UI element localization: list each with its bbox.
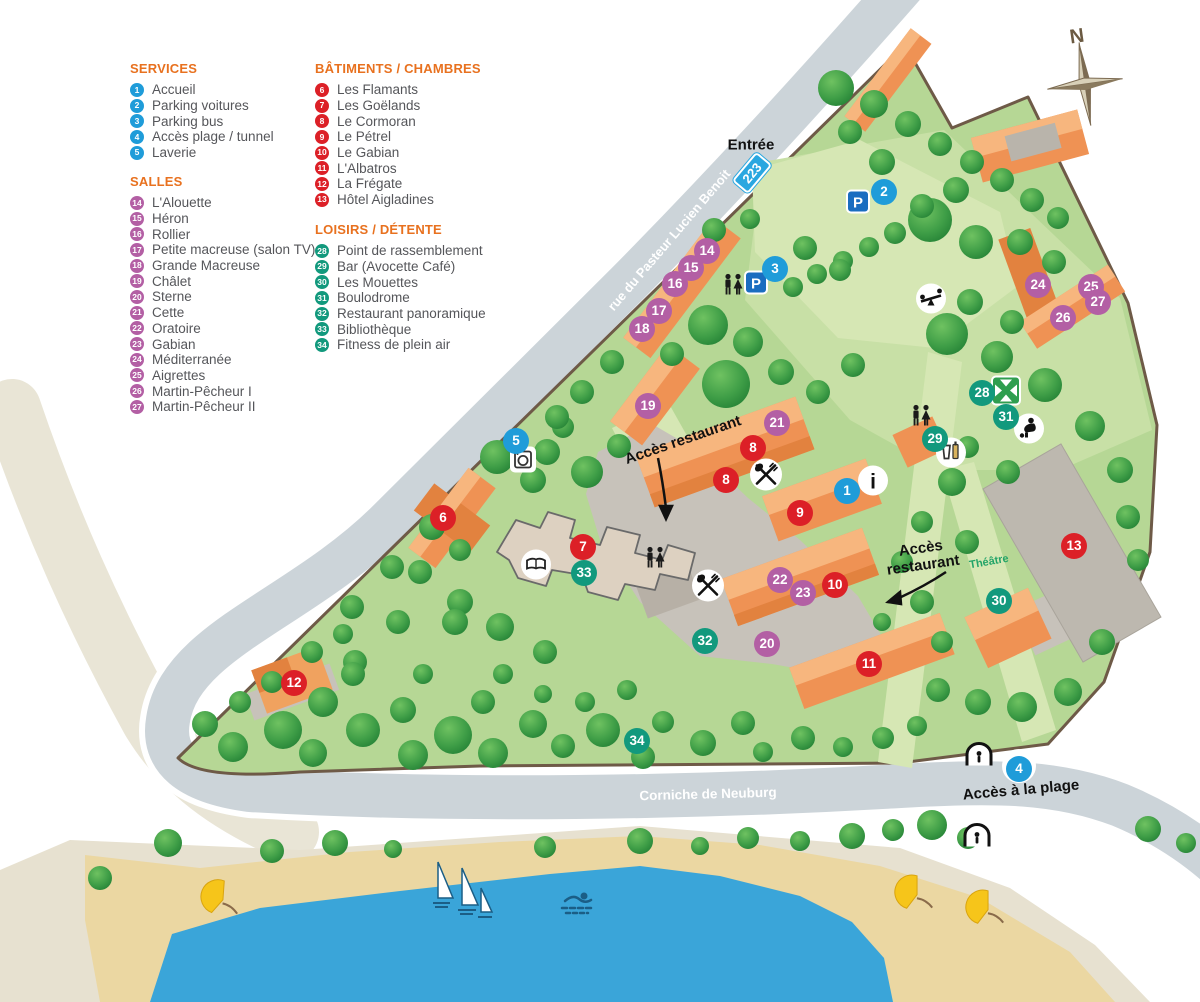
tree <box>1007 229 1033 255</box>
tree <box>911 511 933 533</box>
legend-item-label: Restaurant panoramique <box>337 306 486 321</box>
tree <box>926 678 950 702</box>
tree <box>841 353 865 377</box>
legend-marker-dot: 3 <box>130 114 144 128</box>
legend-item-22: 22Oratoire <box>130 321 315 337</box>
tree <box>818 70 854 106</box>
tree <box>807 264 827 284</box>
tree <box>938 468 966 496</box>
legend-section-services: SERVICES1Accueil2Parking voitures3Parkin… <box>130 61 274 160</box>
legend-item-26: 26Martin-Pêcheur I <box>130 383 315 399</box>
tree <box>449 539 471 561</box>
tree <box>702 360 750 408</box>
tree <box>533 640 557 664</box>
legend-marker-dot: 7 <box>315 99 329 113</box>
legend-item-19: 19Châlet <box>130 273 315 289</box>
legend-item-label: Cette <box>152 305 184 320</box>
legend-marker-dot: 34 <box>315 338 329 352</box>
legend-item-18: 18Grande Macreuse <box>130 258 315 274</box>
legend-item-2: 2Parking voitures <box>130 98 274 114</box>
tree <box>413 664 433 684</box>
tree <box>957 436 979 458</box>
legend-item-10: 10Le Gabian <box>315 145 481 161</box>
tree <box>957 827 979 849</box>
tree <box>534 836 556 858</box>
tree <box>731 711 755 735</box>
tree <box>534 439 560 465</box>
legend-marker-dot: 8 <box>315 114 329 128</box>
tree <box>384 840 402 858</box>
legend-title: BÂTIMENTS / CHAMBRES <box>315 61 481 76</box>
tree <box>960 150 984 174</box>
tree <box>1176 833 1196 853</box>
tree <box>1089 629 1115 655</box>
legend-marker-dot: 6 <box>315 83 329 97</box>
legend-marker-dot: 14 <box>130 196 144 210</box>
tree <box>341 662 365 686</box>
legend-item-label: Laverie <box>152 145 196 160</box>
legend-item-8: 8Le Cormoran <box>315 113 481 129</box>
tree <box>627 828 653 854</box>
tree <box>586 713 620 747</box>
legend-item-label: La Frégate <box>337 176 402 191</box>
tree <box>520 467 546 493</box>
legend-item-label: Le Cormoran <box>337 114 416 129</box>
tree <box>534 685 552 703</box>
tree <box>910 194 934 218</box>
tree <box>688 305 728 345</box>
tree <box>154 829 182 857</box>
tree <box>442 609 468 635</box>
legend-item-label: Parking bus <box>152 114 223 129</box>
tree <box>1000 310 1024 334</box>
legend-item-label: Boulodrome <box>337 290 410 305</box>
tree <box>478 738 508 768</box>
tree <box>261 671 283 693</box>
legend-item-label: Petite macreuse (salon TV) <box>152 242 315 257</box>
legend-marker-dot: 19 <box>130 274 144 288</box>
tree <box>218 732 248 762</box>
legend-marker-dot: 29 <box>315 260 329 274</box>
legend-item-31: 31Boulodrome <box>315 290 486 306</box>
tree <box>471 690 495 714</box>
legend-item-6: 6Les Flamants <box>315 82 481 98</box>
tree <box>1028 368 1062 402</box>
tree <box>1007 692 1037 722</box>
legend-item-29: 29Bar (Avocette Café) <box>315 259 486 275</box>
legend-item-14: 14L'Alouette <box>130 195 315 211</box>
legend-item-28: 28Point de rassemblement <box>315 243 486 259</box>
legend-item-13: 13Hôtel Aigladines <box>315 192 481 208</box>
tree <box>660 342 684 366</box>
tree <box>928 132 952 156</box>
tree <box>1054 678 1082 706</box>
tree <box>571 456 603 488</box>
tree <box>299 739 327 767</box>
tree <box>783 277 803 297</box>
tree <box>790 831 810 851</box>
tree <box>340 595 364 619</box>
legend-marker-dot: 32 <box>315 307 329 321</box>
tree <box>917 810 947 840</box>
tree <box>872 727 894 749</box>
tree <box>860 90 888 118</box>
legend-marker-dot: 10 <box>315 146 329 160</box>
legend-item-4: 4Accès plage / tunnel <box>130 129 274 145</box>
tree <box>346 713 380 747</box>
beach-access-notch <box>1002 749 1036 783</box>
tree <box>895 111 921 137</box>
tree <box>398 740 428 770</box>
legend-item-23: 23Gabian <box>130 336 315 352</box>
legend-item-30: 30Les Mouettes <box>315 274 486 290</box>
legend-item-label: Bibliothèque <box>337 322 411 337</box>
tree <box>1116 505 1140 529</box>
legend-title: LOISIRS / DÉTENTE <box>315 222 486 237</box>
legend-item-label: Les Goëlands <box>337 98 420 113</box>
legend-item-label: Héron <box>152 211 189 226</box>
tree <box>740 209 760 229</box>
tree <box>1042 250 1066 274</box>
tree <box>486 613 514 641</box>
tree <box>301 641 323 663</box>
legend-marker-dot: 9 <box>315 130 329 144</box>
tree <box>264 711 302 749</box>
tree <box>631 745 655 769</box>
legend-item-24: 24Méditerranée <box>130 352 315 368</box>
legend-item-label: Parking voitures <box>152 98 249 113</box>
legend-item-33: 33Bibliothèque <box>315 321 486 337</box>
legend-item-label: Accès plage / tunnel <box>152 129 274 144</box>
legend-item-27: 27Martin-Pêcheur II <box>130 399 315 415</box>
legend-marker-dot: 30 <box>315 275 329 289</box>
legend-item-12: 12La Frégate <box>315 176 481 192</box>
tree <box>910 590 934 614</box>
legend-marker-dot: 23 <box>130 337 144 351</box>
tree <box>737 827 759 849</box>
legend-marker-dot: 33 <box>315 322 329 336</box>
tree <box>229 691 251 713</box>
legend-item-label: Martin-Pêcheur I <box>152 384 252 399</box>
legend-marker-dot: 18 <box>130 259 144 273</box>
tree <box>617 680 637 700</box>
tree <box>88 866 112 890</box>
legend-marker-dot: 25 <box>130 368 144 382</box>
tree <box>791 726 815 750</box>
legend-marker-dot: 1 <box>130 83 144 97</box>
tree <box>260 839 284 863</box>
tree <box>943 177 969 203</box>
legend-item-3: 3Parking bus <box>130 113 274 129</box>
legend-item-label: Gabian <box>152 337 196 352</box>
legend-marker-dot: 13 <box>315 193 329 207</box>
tree <box>965 689 991 715</box>
tree <box>996 460 1020 484</box>
legend-item-label: Le Pétrel <box>337 129 391 144</box>
tree <box>551 734 575 758</box>
tree <box>380 555 404 579</box>
tree <box>322 830 348 856</box>
tree <box>957 289 983 315</box>
tree <box>882 819 904 841</box>
legend-item-11: 11L'Albatros <box>315 160 481 176</box>
tree <box>931 631 953 653</box>
tree <box>733 327 763 357</box>
legend-item-label: Châlet <box>152 274 191 289</box>
legend-marker-dot: 4 <box>130 130 144 144</box>
resort-map-page: PPi 123456788910111213141516171819202122… <box>0 0 1200 1002</box>
tree <box>926 313 968 355</box>
legend-item-label: Aigrettes <box>152 368 205 383</box>
tree <box>768 359 794 385</box>
legend-item-5: 5Laverie <box>130 145 274 161</box>
legend-marker-dot: 20 <box>130 290 144 304</box>
tree <box>607 434 631 458</box>
legend-item-label: Rollier <box>152 227 190 242</box>
legend-section-batiments: BÂTIMENTS / CHAMBRES6Les Flamants7Les Go… <box>315 61 481 208</box>
tree <box>545 405 569 429</box>
legend-item-16: 16Rollier <box>130 226 315 242</box>
legend-item-label: L'Albatros <box>337 161 397 176</box>
legend-item-15: 15Héron <box>130 211 315 227</box>
legend-item-label: Les Flamants <box>337 82 418 97</box>
tree <box>873 613 891 631</box>
legend-marker-dot: 17 <box>130 243 144 257</box>
tree <box>838 120 862 144</box>
tree <box>1020 188 1044 212</box>
legend-item-label: Hôtel Aigladines <box>337 192 434 207</box>
legend-marker-dot: 15 <box>130 212 144 226</box>
legend-item-17: 17Petite macreuse (salon TV) <box>130 242 315 258</box>
legend-marker-dot: 11 <box>315 161 329 175</box>
tree <box>652 711 674 733</box>
legend-item-label: Oratoire <box>152 321 201 336</box>
legend-item-label: Sterne <box>152 289 192 304</box>
legend-marker-dot: 22 <box>130 321 144 335</box>
legend-item-label: Le Gabian <box>337 145 399 160</box>
tree <box>1127 549 1149 571</box>
legend-marker-dot: 24 <box>130 353 144 367</box>
tree <box>1075 411 1105 441</box>
tree <box>981 341 1013 373</box>
tree <box>891 551 913 573</box>
tree <box>333 624 353 644</box>
tree <box>959 225 993 259</box>
legend-item-label: Les Mouettes <box>337 275 418 290</box>
tree <box>1135 816 1161 842</box>
tree <box>955 530 979 554</box>
tree <box>1107 457 1133 483</box>
legend-item-21: 21Cette <box>130 305 315 321</box>
legend-item-1: 1Accueil <box>130 82 274 98</box>
tree <box>308 687 338 717</box>
tree <box>907 716 927 736</box>
legend-item-25: 25Aigrettes <box>130 368 315 384</box>
legend-marker-dot: 2 <box>130 99 144 113</box>
legend-marker-dot: 27 <box>130 400 144 414</box>
legend-marker-dot: 16 <box>130 227 144 241</box>
tree <box>702 218 726 242</box>
tree <box>386 610 410 634</box>
tree <box>434 716 472 754</box>
legend-marker-dot: 26 <box>130 384 144 398</box>
legend-section-loisirs: LOISIRS / DÉTENTE28Point de rassemblemen… <box>315 222 486 353</box>
tree <box>480 440 514 474</box>
tree <box>691 837 709 855</box>
tree <box>793 236 817 260</box>
legend-item-label: Accueil <box>152 82 196 97</box>
tree <box>884 222 906 244</box>
tree <box>859 237 879 257</box>
tree <box>419 514 445 540</box>
tree <box>839 823 865 849</box>
tree <box>519 710 547 738</box>
legend-item-label: Méditerranée <box>152 352 232 367</box>
legend-section-salles: SALLES14L'Alouette15Héron16Rollier17Peti… <box>130 174 315 415</box>
legend-marker-dot: 28 <box>315 244 329 258</box>
tree <box>575 692 595 712</box>
legend-item-label: L'Alouette <box>152 195 212 210</box>
legend-item-7: 7Les Goëlands <box>315 98 481 114</box>
legend-marker-dot: 31 <box>315 291 329 305</box>
tree <box>493 664 513 684</box>
tree <box>690 730 716 756</box>
legend-marker-dot: 5 <box>130 146 144 160</box>
tree <box>806 380 830 404</box>
legend-item-9: 9Le Pétrel <box>315 129 481 145</box>
tree <box>408 560 432 584</box>
tree <box>570 380 594 404</box>
legend-item-label: Grande Macreuse <box>152 258 260 273</box>
tree <box>990 168 1014 192</box>
legend-item-32: 32Restaurant panoramique <box>315 306 486 322</box>
tree <box>600 350 624 374</box>
tree <box>753 742 773 762</box>
legend-marker-dot: 12 <box>315 177 329 191</box>
legend-item-label: Bar (Avocette Café) <box>337 259 455 274</box>
legend-title: SERVICES <box>130 61 274 76</box>
legend-title: SALLES <box>130 174 315 189</box>
tree <box>833 737 853 757</box>
legend-item-label: Fitness de plein air <box>337 337 450 352</box>
legend-marker-dot: 21 <box>130 306 144 320</box>
legend-item-label: Point de rassemblement <box>337 243 483 258</box>
legend-item-34: 34Fitness de plein air <box>315 337 486 353</box>
tree <box>192 711 218 737</box>
legend-item-label: Martin-Pêcheur II <box>152 399 256 414</box>
tree <box>390 697 416 723</box>
tree <box>1047 207 1069 229</box>
legend-item-20: 20Sterne <box>130 289 315 305</box>
tree <box>869 149 895 175</box>
tree <box>829 259 851 281</box>
